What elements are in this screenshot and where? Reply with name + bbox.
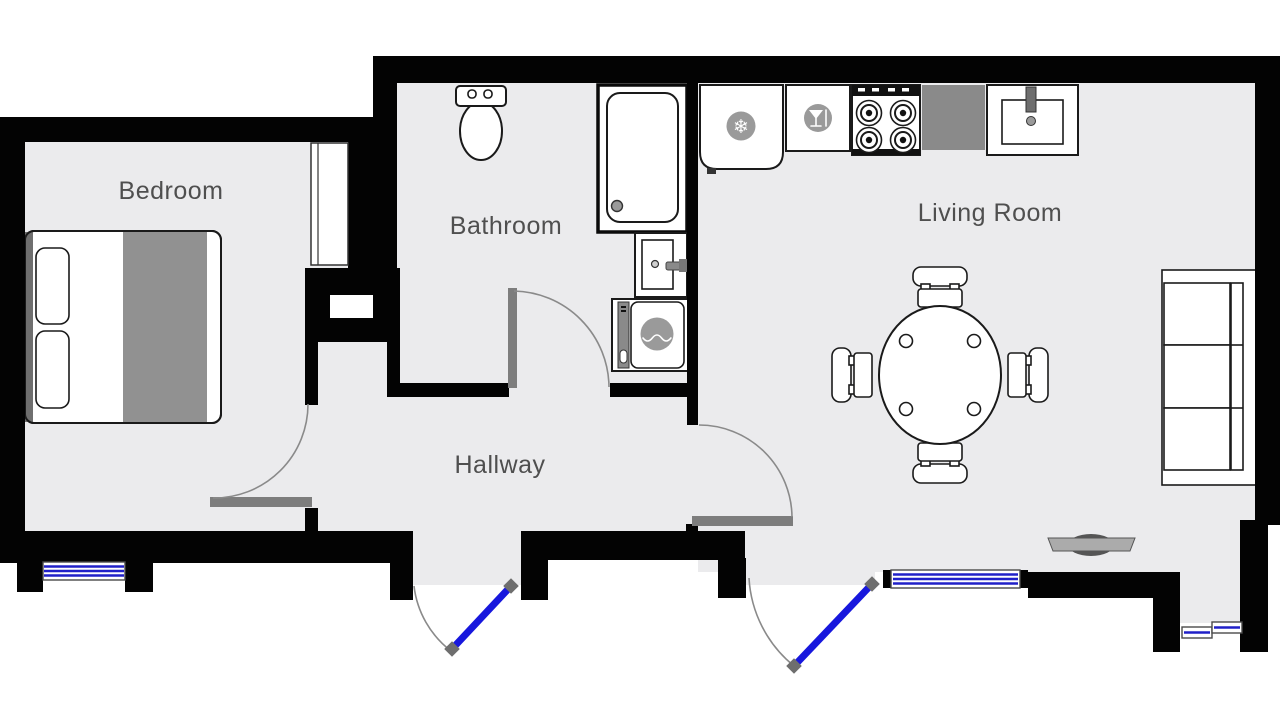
room-label-living-room: Living Room: [918, 199, 1062, 227]
sofa-seat: [1164, 283, 1230, 345]
sofa-seat: [1164, 408, 1230, 470]
bathroom-door-leaf: [508, 288, 517, 388]
bathroom-sink: [635, 233, 687, 297]
fridge-foot: [707, 168, 716, 174]
bed-pillow: [36, 331, 69, 408]
sofa-backrest: [1231, 283, 1243, 470]
wall-segment: [125, 563, 153, 592]
sofa: [1162, 270, 1257, 485]
bed-blanket: [123, 232, 207, 422]
wall-segment: [883, 570, 891, 588]
chair-seat: [918, 289, 962, 307]
wall-segment: [387, 342, 400, 385]
wall-segment: [17, 563, 43, 592]
wall-segment: [0, 117, 25, 533]
bed-pillow: [36, 248, 69, 324]
faucet-icon: [1026, 87, 1036, 112]
double-bed: [25, 231, 221, 423]
living-room-door-threshold: [692, 516, 793, 526]
shower-drain: [612, 201, 623, 212]
wall-segment: [1028, 572, 1180, 598]
washing-machine: [612, 299, 690, 371]
balcony-door-arc: [749, 578, 794, 666]
wall-segment: [1255, 56, 1280, 525]
bed-headboard: [25, 232, 33, 422]
stove: [852, 85, 920, 155]
fridge: ❄: [700, 85, 783, 174]
chair-back: [913, 267, 967, 286]
toilet: [456, 86, 506, 160]
bedroom-window: [43, 562, 125, 580]
floor-plan-page: ❄: [0, 0, 1280, 720]
entry-threshold-floor: [413, 533, 521, 585]
faucet-base: [679, 259, 687, 272]
bedroom-door-threshold: [210, 497, 312, 507]
shower: [598, 85, 687, 232]
wall-segment: [521, 531, 745, 560]
dining-table: [879, 306, 1001, 444]
room-label-bedroom: Bedroom: [119, 177, 224, 205]
corner-window: [1182, 622, 1242, 638]
living-room-window: [891, 570, 1020, 588]
wall-segment: [348, 142, 397, 268]
kitchen-counter: [922, 85, 985, 150]
floor-plan: ❄: [0, 0, 1280, 720]
washing-machine-drum: [641, 318, 674, 351]
wall-segment: [687, 83, 698, 425]
room-label-bathroom: Bathroom: [450, 212, 562, 240]
wall-segment: [305, 508, 318, 533]
wall-segment: [373, 56, 1280, 83]
balcony-door: [786, 576, 880, 674]
wall-segment: [0, 531, 413, 563]
wall-segment: [305, 342, 318, 405]
wall-segment: [1020, 570, 1028, 588]
tv-screen: [1048, 538, 1135, 551]
dishwasher: [786, 85, 850, 151]
wall-segment: [387, 383, 509, 397]
entry-door: [444, 578, 519, 657]
sofa-seat: [1164, 345, 1230, 408]
wall-segment: [610, 383, 698, 397]
wall-segment: [1153, 598, 1180, 652]
entry-door-arc: [414, 586, 451, 651]
window-notch-floor: [1180, 572, 1240, 623]
room-label-hallway: Hallway: [454, 451, 545, 479]
snowflake-icon: ❄: [733, 117, 749, 138]
wall-segment: [0, 117, 397, 142]
kitchen-sink: [987, 85, 1078, 155]
wall-segment: [1240, 520, 1268, 652]
wardrobe-closet: [311, 143, 348, 265]
wall-segment: [718, 558, 746, 598]
balcony-threshold-floor: [745, 560, 875, 585]
wall-segment: [390, 563, 413, 600]
dishwasher-icon: [804, 104, 832, 132]
wall-niche: [330, 295, 373, 318]
wall-segment: [521, 560, 548, 600]
